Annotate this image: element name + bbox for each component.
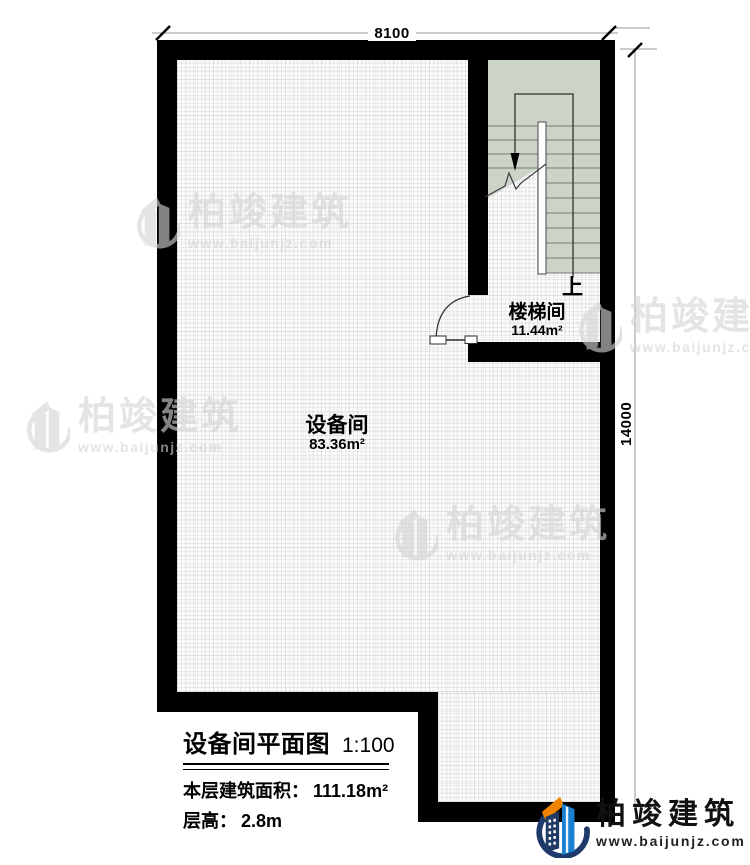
brand-logo: 柏竣建筑 www.baijunjz.com [533, 791, 746, 858]
staircase [485, 60, 600, 278]
watermark-name: 柏竣建筑 [188, 194, 352, 232]
watermark-logo-icon [24, 396, 70, 456]
dimension-top: 8100 [152, 24, 650, 42]
door-jamb-right [465, 336, 477, 344]
title-underline [183, 763, 389, 770]
floor-height-label: 层高： [183, 811, 237, 831]
watermark-logo-icon [392, 504, 438, 564]
watermark-name: 柏竣建筑 [630, 298, 750, 336]
brand-logo-icon [533, 791, 591, 858]
door-swing-arc [436, 296, 470, 338]
watermark: 柏竣建筑 www.baijunjz.com [24, 396, 242, 456]
plan-title: 设备间平面图 [183, 724, 330, 759]
brand-logo-url: www.baijunjz.com [596, 833, 746, 849]
area-value: 111.18m² [313, 781, 388, 801]
watermark-logo-icon [134, 192, 180, 252]
title-block: 设备间平面图 1:100 本层建筑面积：111.18m² 层高：2.8m [183, 724, 395, 833]
area-label: 本层建筑面积： [183, 781, 309, 801]
equipment-room-area: 83.36m² [306, 437, 369, 454]
watermark-url: www.baijunjz.com [78, 439, 242, 455]
watermark-url: www.baijunjz.com [630, 339, 750, 355]
stairwell-name: 楼梯间 [508, 303, 565, 323]
watermark-name: 柏竣建筑 [78, 398, 242, 436]
dimension-right: 14000 [618, 43, 657, 808]
watermark: 柏竣建筑 www.baijunjz.com [576, 296, 750, 356]
brand-logo-name: 柏竣建筑 [596, 800, 746, 830]
watermark-url: www.baijunjz.com [188, 235, 352, 251]
watermark-url: www.baijunjz.com [446, 547, 610, 563]
watermark-name: 柏竣建筑 [446, 506, 610, 544]
plan-scale: 1:100 [342, 734, 395, 758]
watermark: 柏竣建筑 www.baijunjz.com [392, 504, 610, 564]
stairwell-door [430, 296, 477, 344]
door-jamb-left [430, 336, 446, 344]
floor-plan-page: 8100 14000 设备间 83.36m² 楼梯间 11.44m² 上 柏竣建… [0, 0, 750, 865]
floor-height-value: 2.8m [241, 811, 282, 831]
dimension-right-value: 14000 [618, 402, 635, 446]
stairwell-label: 楼梯间 11.44m² [508, 303, 565, 338]
watermark: 柏竣建筑 www.baijunjz.com [134, 192, 352, 252]
stairwell-area: 11.44m² [508, 323, 565, 338]
equipment-room-label: 设备间 83.36m² [306, 415, 369, 454]
equipment-room-name: 设备间 [306, 415, 369, 437]
dimension-top-value: 8100 [374, 25, 409, 42]
watermark-logo-icon [576, 296, 622, 356]
stair-railing [538, 122, 546, 274]
